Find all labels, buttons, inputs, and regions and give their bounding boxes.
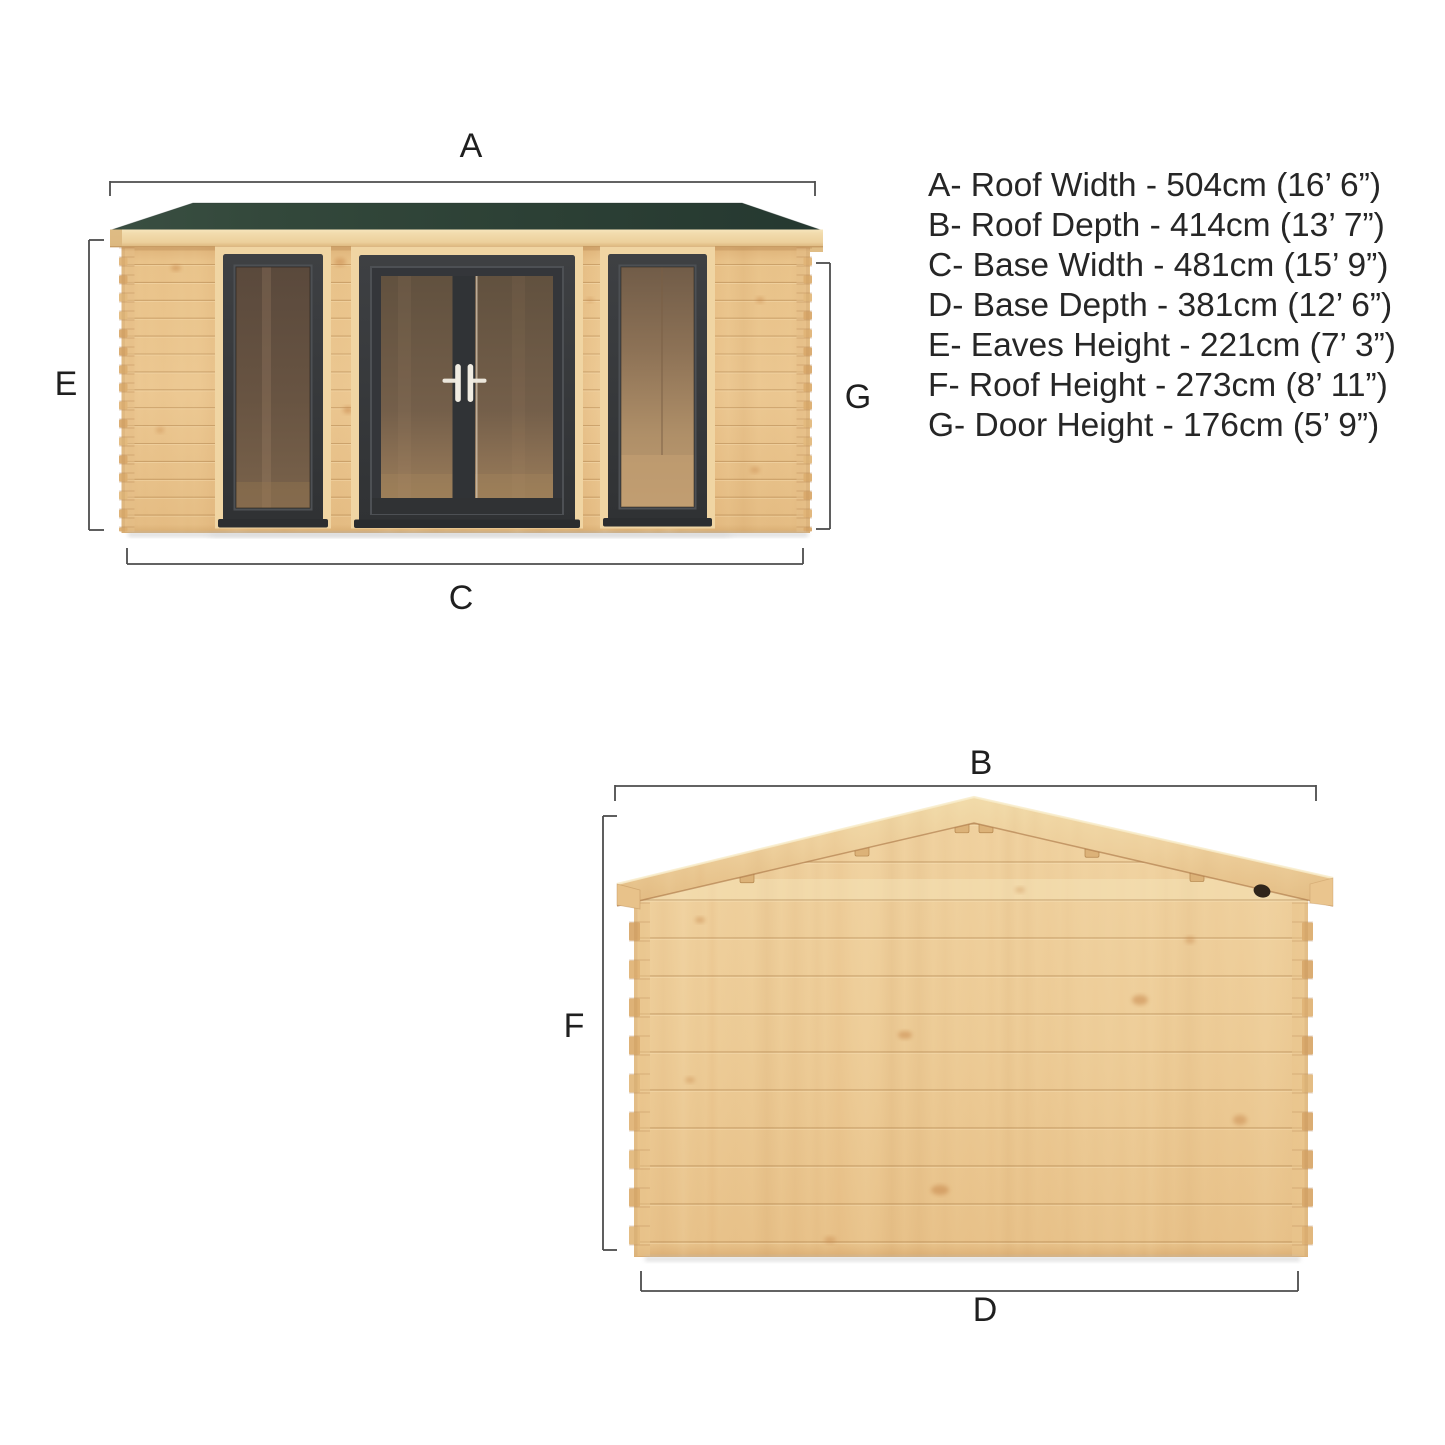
svg-text:G: G: [845, 378, 871, 416]
svg-text:C: C: [449, 579, 474, 617]
svg-text:A- Roof Width - 504cm (16’ 6”): A- Roof Width - 504cm (16’ 6”): [928, 167, 1381, 204]
svg-text:G- Door Height - 176cm (5’ 9”): G- Door Height - 176cm (5’ 9”): [928, 407, 1379, 444]
svg-text:C- Base Width - 481cm (15’ 9”): C- Base Width - 481cm (15’ 9”): [928, 247, 1388, 284]
svg-text:D: D: [973, 1291, 998, 1329]
svg-text:E- Eaves Height - 221cm (7’ 3”: E- Eaves Height - 221cm (7’ 3”): [928, 327, 1396, 364]
svg-text:E: E: [55, 365, 78, 403]
svg-text:F: F: [564, 1007, 585, 1045]
svg-text:D- Base Depth - 381cm (12’ 6”): D- Base Depth - 381cm (12’ 6”): [928, 287, 1392, 324]
svg-text:F- Roof Height - 273cm (8’ 11”: F- Roof Height - 273cm (8’ 11”): [928, 367, 1388, 404]
svg-text:A: A: [460, 127, 483, 165]
svg-text:B- Roof Depth - 414cm (13’ 7”): B- Roof Depth - 414cm (13’ 7”): [928, 207, 1385, 244]
svg-text:B: B: [970, 744, 993, 782]
